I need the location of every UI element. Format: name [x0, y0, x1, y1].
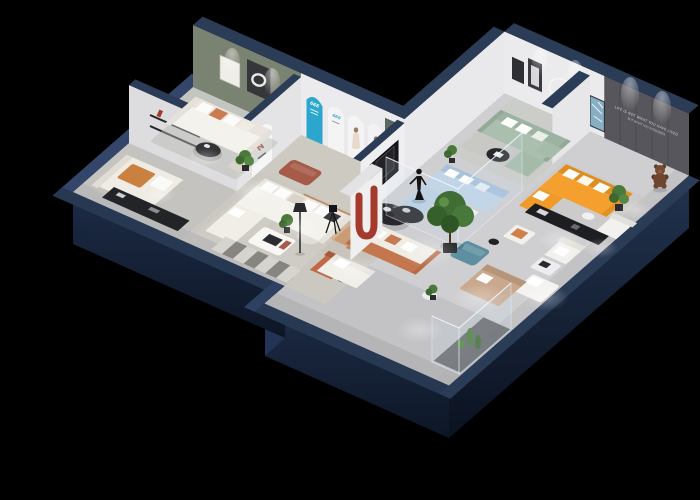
- poster-figure-head: [354, 127, 358, 132]
- poster-figure-body: [352, 133, 360, 149]
- downlight-glow: [621, 77, 639, 111]
- downlight-glow: [224, 48, 240, 76]
- downlight-glow: [532, 48, 548, 76]
- floorplan-render: 666 666 LIFE IS NOT WHAT YOU HAVE LIVED …: [0, 0, 700, 500]
- downlight-glow: [653, 91, 671, 125]
